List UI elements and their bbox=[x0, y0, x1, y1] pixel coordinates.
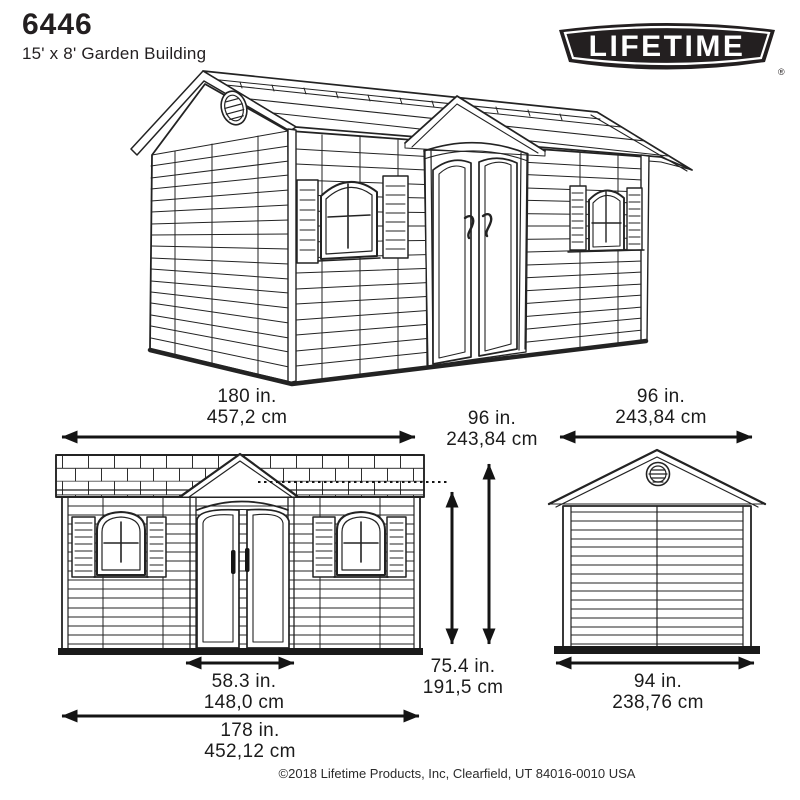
side-width-label: 96 in. 243,84 cm bbox=[615, 386, 706, 428]
shutter bbox=[72, 517, 95, 577]
eave-height-cm: 191,5 cm bbox=[423, 677, 504, 698]
base-rail bbox=[58, 648, 423, 655]
product-name: 15' x 8' Garden Building bbox=[22, 44, 206, 64]
front-width-cm: 457,2 cm bbox=[207, 407, 288, 428]
shutter bbox=[627, 188, 642, 250]
lifetime-logo: LIFETIME ® bbox=[559, 23, 785, 77]
right-window bbox=[313, 512, 406, 577]
front-left-window bbox=[297, 176, 408, 263]
total-height-label: 96 in. 243,84 cm bbox=[446, 408, 537, 450]
left-window bbox=[72, 512, 166, 577]
product-dimension-diagram: LIFETIME ® 6446 15' x 8' Garden Building… bbox=[0, 0, 800, 800]
registered-trademark: ® bbox=[778, 67, 785, 77]
shutter bbox=[387, 517, 406, 577]
shutter bbox=[383, 176, 408, 258]
side-width-cm: 243,84 cm bbox=[615, 407, 706, 428]
base-width-inches: 178 in. bbox=[204, 720, 295, 741]
door-width-cm: 148,0 cm bbox=[204, 692, 285, 713]
base-width-label: 178 in. 452,12 cm bbox=[204, 720, 295, 762]
perspective-view bbox=[131, 71, 692, 384]
base-rail bbox=[554, 646, 760, 654]
eave-height-inches: 75.4 in. bbox=[423, 656, 504, 677]
gable-vent-icon bbox=[647, 463, 670, 486]
left-corner-trim bbox=[288, 129, 296, 383]
copyright-text: ©2018 Lifetime Products, Inc, Clearfield… bbox=[279, 766, 636, 781]
shutter bbox=[570, 186, 586, 250]
total-height-cm: 243,84 cm bbox=[446, 429, 537, 450]
shutter bbox=[297, 180, 318, 263]
door-width-inches: 58.3 in. bbox=[204, 671, 285, 692]
front-right-window bbox=[568, 186, 644, 252]
front-width-label: 180 in. 457,2 cm bbox=[207, 386, 288, 428]
front-elevation-view bbox=[56, 454, 424, 655]
shutter bbox=[147, 517, 166, 577]
base-width-cm: 452,12 cm bbox=[204, 741, 295, 762]
front-width-inches: 180 in. bbox=[207, 386, 288, 407]
shutter bbox=[313, 517, 335, 577]
side-base-width-cm: 238,76 cm bbox=[612, 692, 703, 713]
window-frame bbox=[321, 182, 377, 259]
side-base-width-label: 94 in. 238,76 cm bbox=[612, 671, 703, 713]
eave-height-label: 75.4 in. 191,5 cm bbox=[423, 656, 504, 698]
door-width-label: 58.3 in. 148,0 cm bbox=[204, 671, 285, 713]
side-elevation-view bbox=[549, 450, 765, 654]
left-gable-wall bbox=[150, 84, 290, 382]
logo-wordmark: LIFETIME bbox=[589, 30, 746, 63]
total-height-inches: 96 in. bbox=[446, 408, 537, 429]
model-number: 6446 bbox=[22, 8, 93, 42]
side-base-width-inches: 94 in. bbox=[612, 671, 703, 692]
door-handle bbox=[231, 550, 236, 574]
side-width-inches: 96 in. bbox=[615, 386, 706, 407]
door-handle bbox=[245, 548, 250, 572]
